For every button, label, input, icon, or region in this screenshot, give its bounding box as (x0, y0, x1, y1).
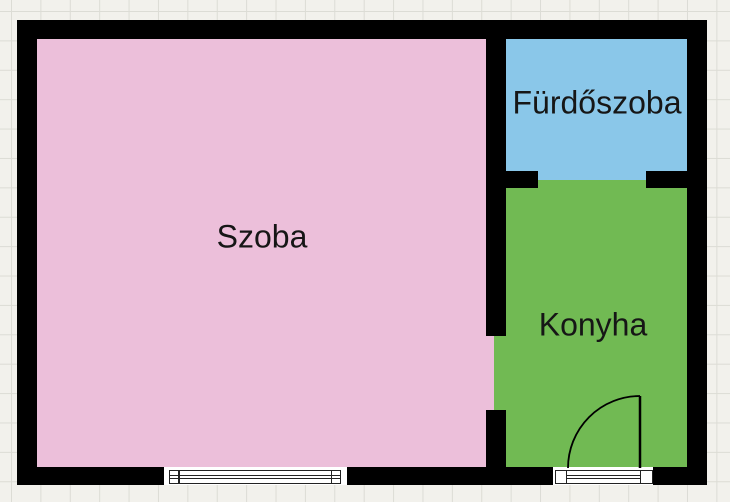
doorway-furdoszoba-konyha-floor-furdoszoba-side (538, 171, 646, 180)
door-sill-line (567, 478, 640, 480)
door-sill-line (567, 475, 640, 477)
window-symbol[interactable] (169, 470, 341, 484)
window-frame-tick (178, 471, 180, 483)
window-frame-tick (331, 471, 333, 483)
grid-paper-canvas: Szoba Fürdőszoba Konyha (0, 0, 730, 502)
room-label-szoba: Szoba (217, 219, 308, 256)
room-label-konyha: Konyha (539, 307, 648, 344)
window-pane-line (170, 475, 340, 477)
doorway-szoba-konyha-floor-konyha-side (494, 336, 506, 410)
room-label-furdoszoba: Fürdőszoba (513, 85, 682, 122)
window-pane-line (170, 478, 340, 480)
door-sill-symbol (566, 470, 641, 484)
door-sill-right-cap (640, 470, 653, 484)
doorway-furdoszoba-konyha-floor-konyha-side (538, 180, 646, 188)
doorway-szoba-konyha-floor-szoba-side (486, 336, 494, 410)
